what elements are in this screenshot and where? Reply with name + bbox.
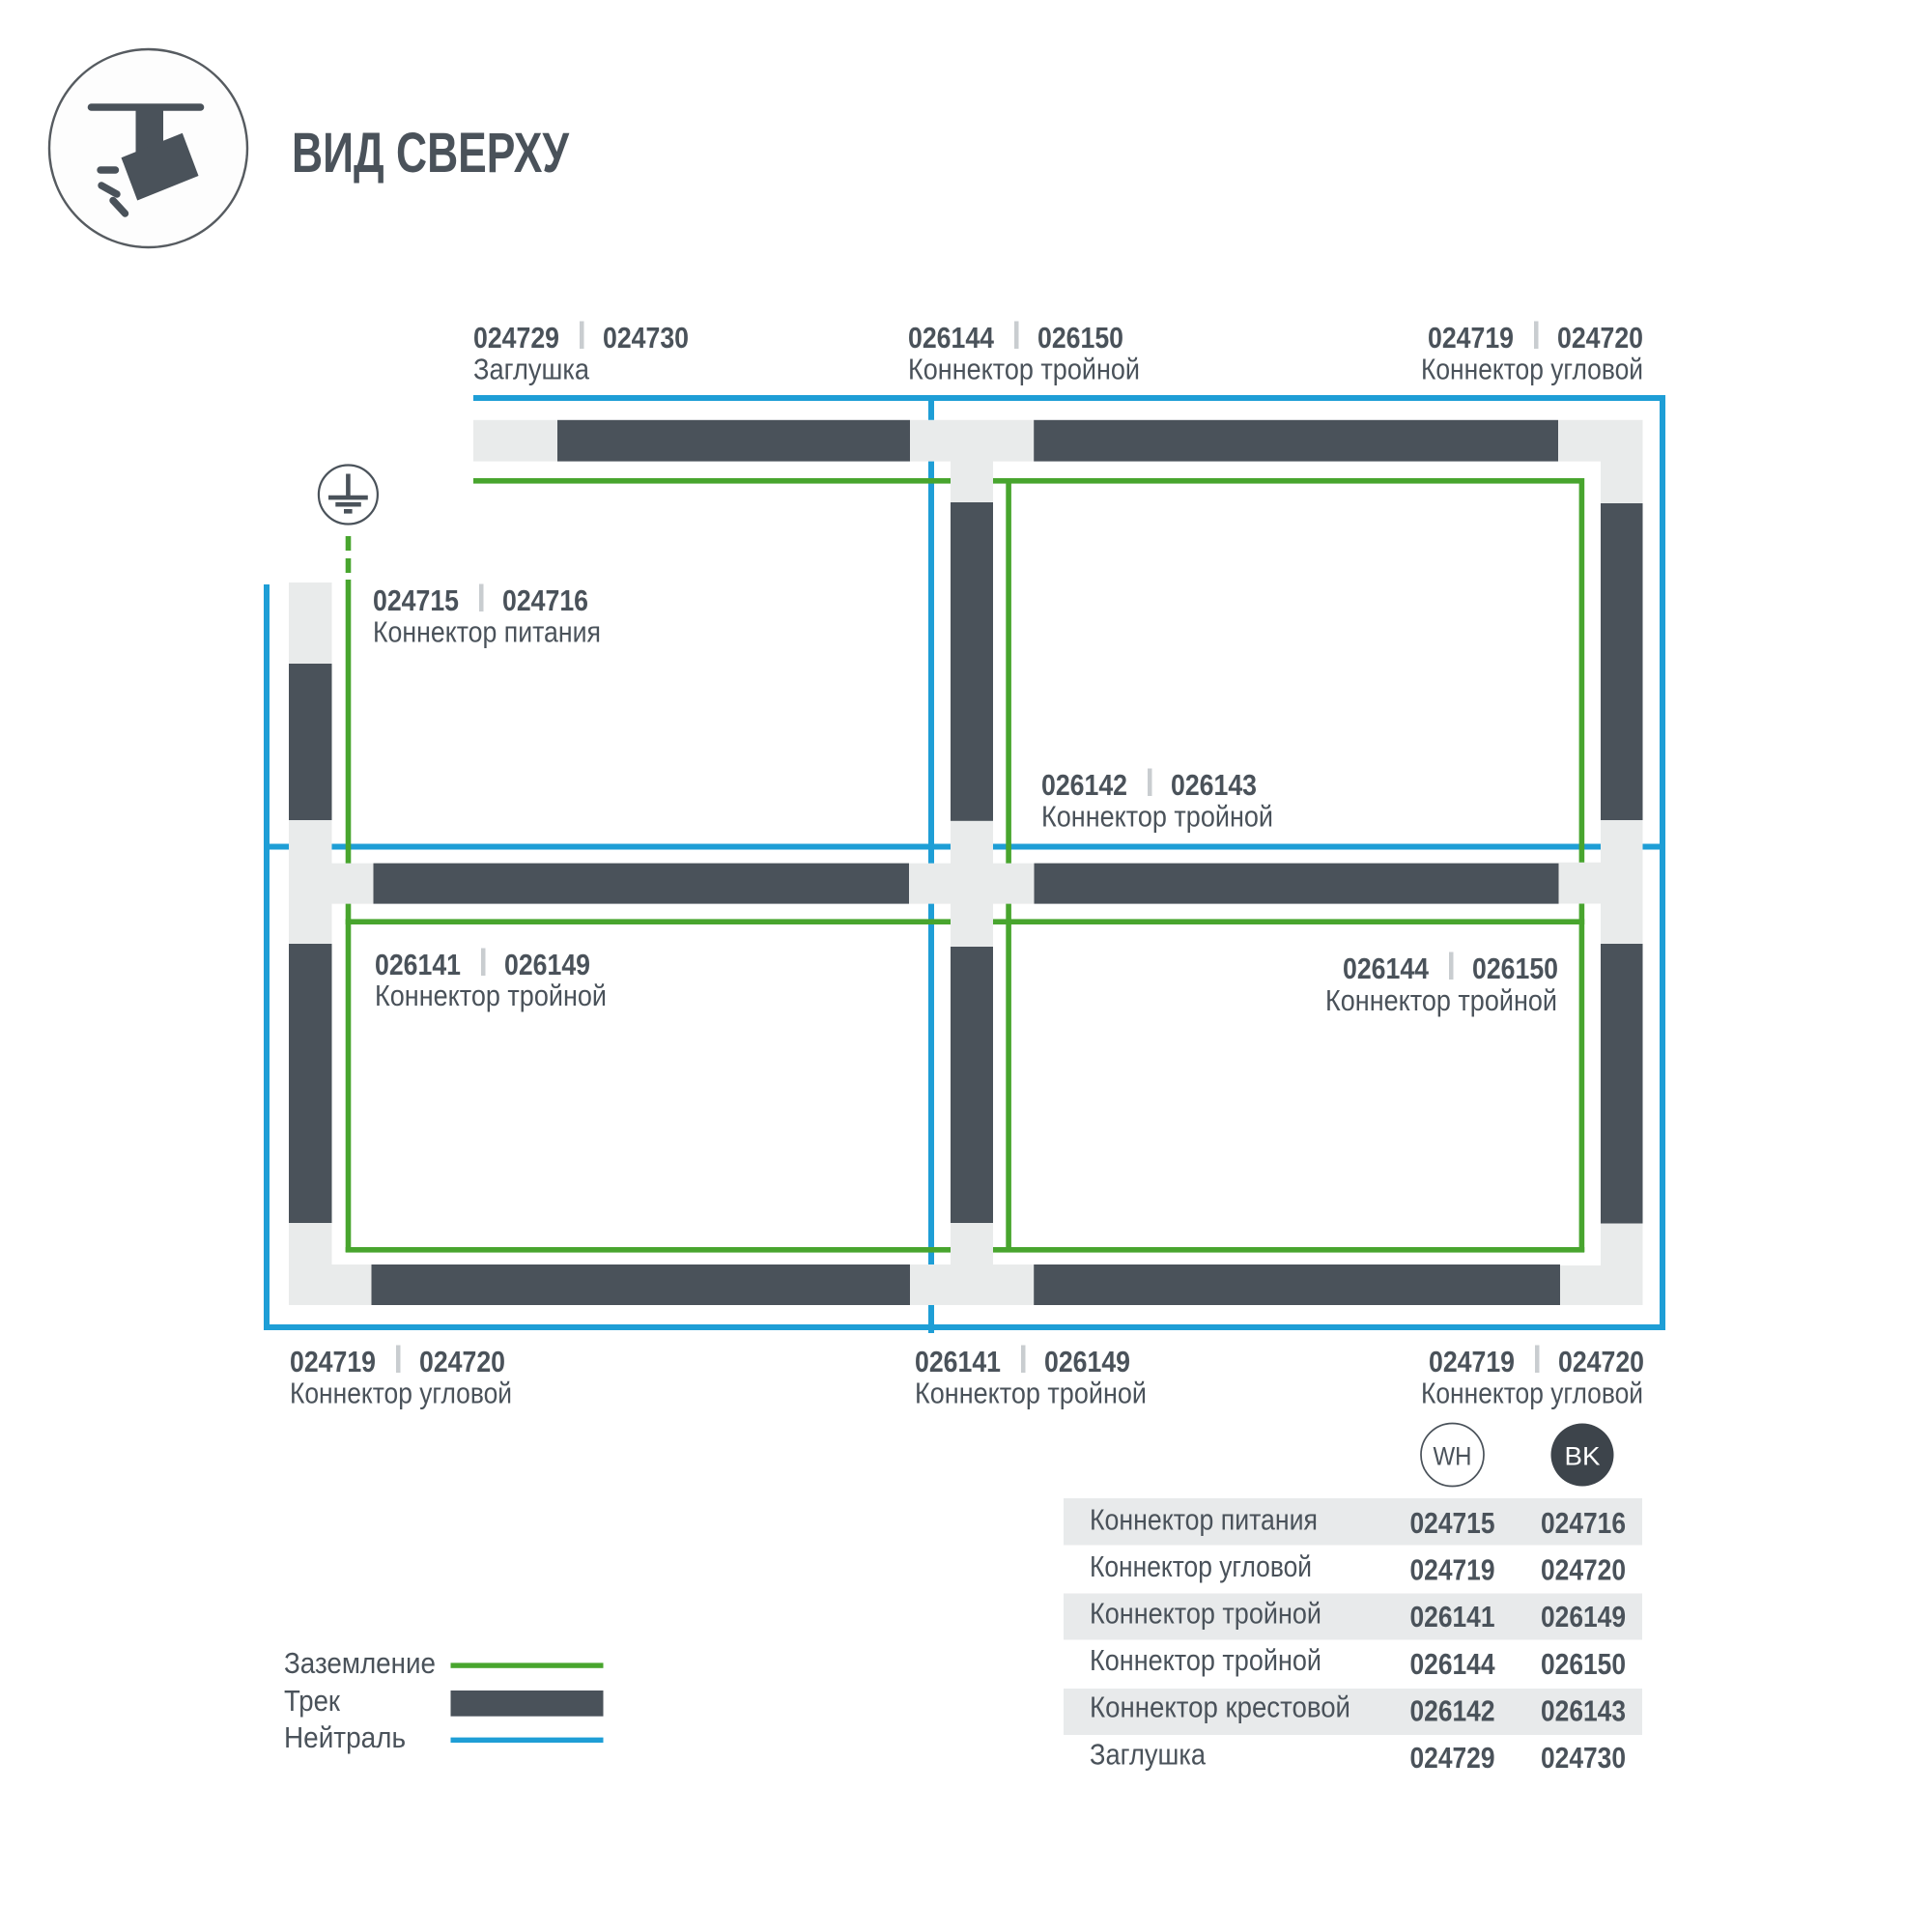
svg-text:026141: 026141 — [915, 1345, 1001, 1378]
svg-text:024719: 024719 — [1410, 1553, 1495, 1587]
svg-text:026144: 026144 — [1410, 1647, 1496, 1681]
svg-text:Коннектор тройной: Коннектор тройной — [1041, 800, 1273, 834]
svg-text:BK: BK — [1565, 1442, 1601, 1471]
svg-text:026149: 026149 — [1044, 1345, 1130, 1378]
svg-text:024730: 024730 — [603, 321, 689, 355]
svg-text:024729: 024729 — [473, 321, 559, 355]
svg-text:024716: 024716 — [502, 583, 588, 617]
svg-text:026149: 026149 — [504, 948, 590, 981]
svg-text:Коннектор угловой: Коннектор угловой — [1090, 1549, 1312, 1583]
svg-text:Заглушка: Заглушка — [1090, 1737, 1207, 1771]
svg-text:ВИД СВЕРХУ: ВИД СВЕРХУ — [292, 122, 570, 185]
svg-text:Коннектор тройной: Коннектор тройной — [1090, 1643, 1321, 1677]
svg-text:026150: 026150 — [1037, 321, 1123, 355]
svg-text:Коннектор тройной: Коннектор тройной — [375, 979, 607, 1012]
svg-text:Коннектор тройной: Коннектор тройной — [1325, 983, 1557, 1017]
svg-text:024719: 024719 — [290, 1345, 376, 1378]
svg-text:026141: 026141 — [1410, 1600, 1495, 1634]
svg-text:Коннектор тройной: Коннектор тройной — [1090, 1597, 1321, 1631]
svg-text:024720: 024720 — [1541, 1553, 1626, 1587]
svg-text:Трек: Трек — [284, 1684, 340, 1718]
svg-text:026143: 026143 — [1541, 1693, 1626, 1727]
svg-text:026150: 026150 — [1541, 1647, 1626, 1681]
svg-text:026144: 026144 — [1343, 952, 1430, 985]
svg-text:026144: 026144 — [908, 321, 995, 355]
svg-text:024716: 024716 — [1541, 1506, 1626, 1540]
svg-text:Нейтраль: Нейтраль — [284, 1720, 406, 1754]
svg-text:Коннектор тройной: Коннектор тройной — [908, 353, 1140, 386]
svg-text:Коннектор крестовой: Коннектор крестовой — [1090, 1690, 1350, 1724]
svg-text:024720: 024720 — [1557, 321, 1643, 355]
svg-text:Коннектор угловой: Коннектор угловой — [290, 1377, 512, 1410]
svg-text:Заглушка: Заглушка — [473, 353, 590, 386]
svg-text:Коннектор питания: Коннектор питания — [373, 615, 601, 649]
svg-text:024719: 024719 — [1428, 321, 1514, 355]
svg-text:024730: 024730 — [1541, 1741, 1626, 1775]
svg-text:Заземление: Заземление — [284, 1646, 436, 1680]
svg-text:Коннектор питания: Коннектор питания — [1090, 1502, 1318, 1536]
svg-text:024720: 024720 — [419, 1345, 505, 1378]
svg-text:024715: 024715 — [373, 583, 459, 617]
svg-text:WH: WH — [1434, 1442, 1472, 1471]
svg-text:026142: 026142 — [1041, 768, 1127, 802]
svg-text:024729: 024729 — [1410, 1741, 1495, 1775]
svg-text:024715: 024715 — [1410, 1506, 1495, 1540]
svg-text:Коннектор угловой: Коннектор угловой — [1421, 353, 1643, 386]
svg-text:024720: 024720 — [1558, 1345, 1644, 1378]
svg-text:026149: 026149 — [1541, 1600, 1626, 1634]
svg-text:026143: 026143 — [1171, 768, 1257, 802]
svg-text:Коннектор тройной: Коннектор тройной — [915, 1377, 1147, 1410]
svg-text:026150: 026150 — [1472, 952, 1558, 985]
svg-text:024719: 024719 — [1429, 1345, 1515, 1378]
svg-text:Коннектор угловой: Коннектор угловой — [1421, 1377, 1643, 1410]
svg-text:026141: 026141 — [375, 948, 461, 981]
svg-text:026142: 026142 — [1410, 1693, 1495, 1727]
